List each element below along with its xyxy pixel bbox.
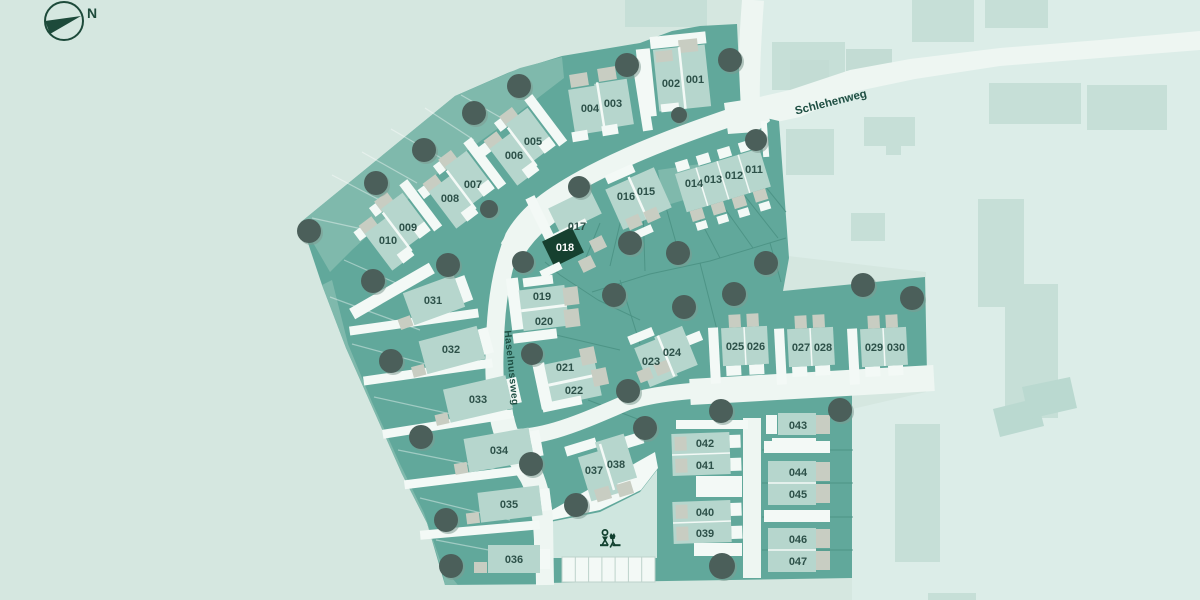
svg-text:017: 017 — [568, 221, 586, 233]
svg-text:009: 009 — [399, 222, 417, 234]
svg-text:021: 021 — [556, 362, 574, 374]
svg-text:039: 039 — [696, 528, 714, 540]
svg-text:043: 043 — [789, 420, 807, 432]
svg-text:042: 042 — [696, 438, 714, 450]
svg-text:001: 001 — [686, 74, 704, 86]
svg-text:012: 012 — [725, 170, 743, 182]
svg-text:N: N — [87, 5, 97, 21]
svg-text:026: 026 — [747, 341, 765, 353]
svg-text:004: 004 — [581, 103, 600, 115]
svg-text:013: 013 — [704, 174, 722, 186]
svg-text:019: 019 — [533, 291, 551, 303]
svg-text:045: 045 — [789, 489, 807, 501]
svg-text:040: 040 — [696, 507, 714, 519]
svg-text:031: 031 — [424, 295, 442, 307]
svg-text:037: 037 — [585, 465, 603, 477]
svg-text:041: 041 — [696, 460, 714, 472]
svg-text:018: 018 — [556, 242, 574, 254]
svg-text:011: 011 — [745, 164, 763, 176]
svg-text:035: 035 — [500, 499, 518, 511]
svg-text:008: 008 — [441, 193, 459, 205]
svg-text:036: 036 — [505, 554, 523, 566]
svg-text:014: 014 — [685, 178, 704, 190]
svg-text:047: 047 — [789, 556, 807, 568]
svg-text:033: 033 — [469, 394, 487, 406]
svg-text:029: 029 — [865, 342, 883, 354]
svg-text:030: 030 — [887, 342, 905, 354]
svg-text:002: 002 — [662, 78, 680, 90]
svg-text:007: 007 — [464, 179, 482, 191]
svg-text:027: 027 — [792, 342, 810, 354]
svg-text:025: 025 — [726, 341, 744, 353]
svg-text:022: 022 — [565, 385, 583, 397]
svg-text:023: 023 — [642, 356, 660, 368]
svg-text:028: 028 — [814, 342, 832, 354]
svg-text:044: 044 — [789, 467, 808, 479]
svg-text:010: 010 — [379, 235, 397, 247]
svg-text:020: 020 — [535, 316, 553, 328]
svg-text:016: 016 — [617, 191, 635, 203]
svg-text:032: 032 — [442, 344, 460, 356]
svg-text:038: 038 — [607, 459, 625, 471]
svg-text:024: 024 — [663, 347, 682, 359]
svg-text:003: 003 — [604, 98, 622, 110]
svg-text:015: 015 — [637, 186, 655, 198]
svg-text:005: 005 — [524, 136, 542, 148]
svg-text:034: 034 — [490, 445, 509, 457]
svg-text:006: 006 — [505, 150, 523, 162]
svg-text:046: 046 — [789, 534, 807, 546]
